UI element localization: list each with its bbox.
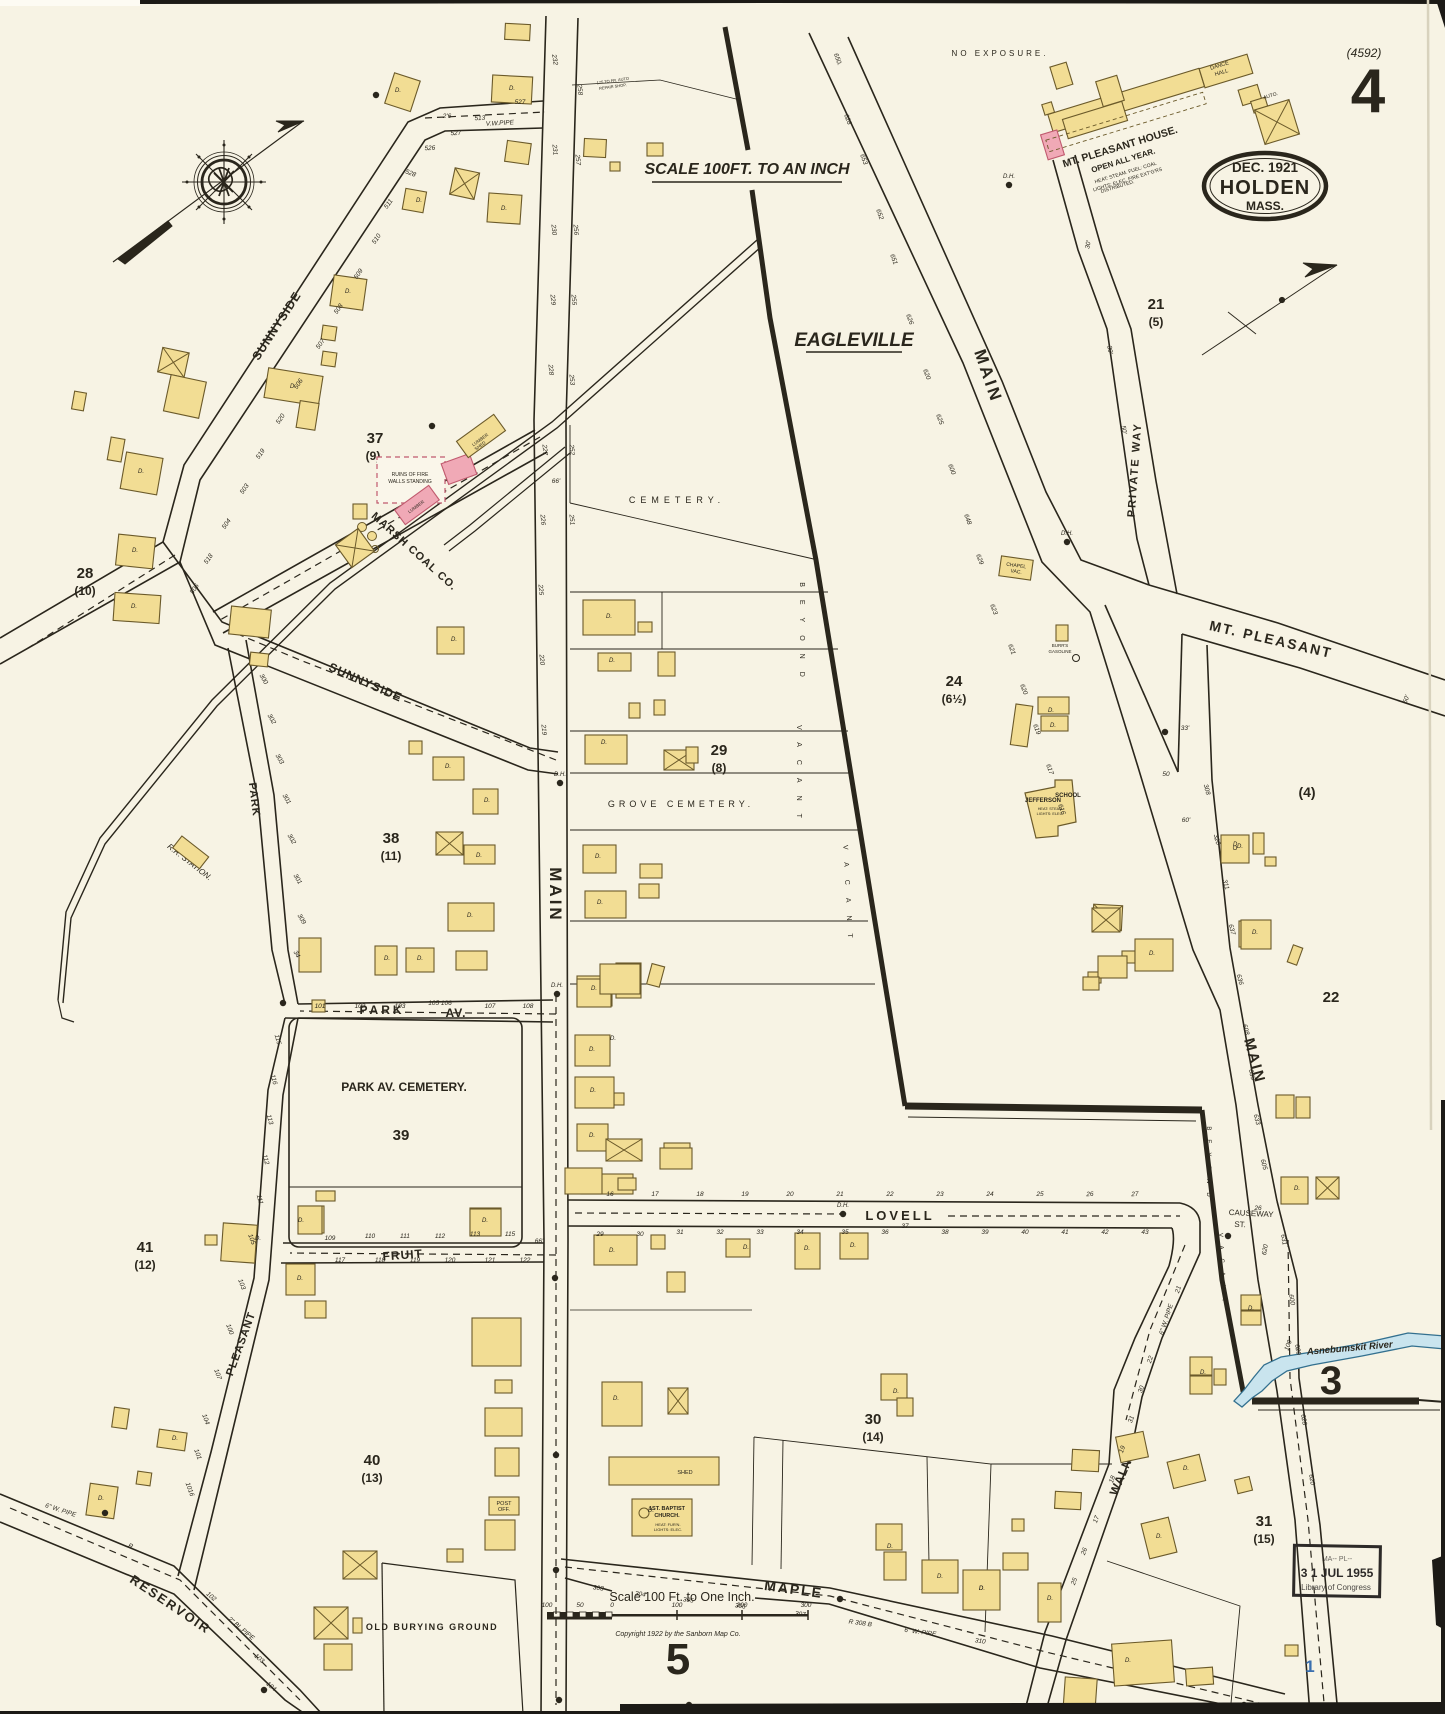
svg-text:2'6: 2'6 xyxy=(442,113,452,120)
svg-text:D.: D. xyxy=(132,548,138,554)
svg-text:(5): (5) xyxy=(1149,315,1164,329)
svg-text:5: 5 xyxy=(666,1635,690,1684)
svg-text:20: 20 xyxy=(785,1191,794,1198)
svg-text:HOLDEN: HOLDEN xyxy=(1220,177,1310,199)
svg-text:D.: D. xyxy=(597,900,603,906)
svg-text:33: 33 xyxy=(756,1229,764,1236)
svg-text:113: 113 xyxy=(470,1231,481,1238)
svg-text:D.: D. xyxy=(1050,723,1056,729)
svg-text:21: 21 xyxy=(835,1191,844,1198)
svg-text:36: 36 xyxy=(881,1229,889,1236)
svg-text:SHED: SHED xyxy=(677,1470,692,1476)
svg-text:OFF.: OFF. xyxy=(498,1507,510,1513)
svg-text:D.: D. xyxy=(589,1047,595,1053)
svg-text:D.: D. xyxy=(501,206,507,212)
svg-text:526: 526 xyxy=(424,145,436,153)
svg-text:(6½): (6½) xyxy=(942,692,967,706)
svg-text:D.: D. xyxy=(1200,1370,1206,1376)
svg-text:CHURCH.: CHURCH. xyxy=(654,1513,680,1519)
svg-text:300: 300 xyxy=(801,1602,812,1609)
svg-text:D.: D. xyxy=(595,854,601,860)
svg-text:527: 527 xyxy=(450,130,462,138)
svg-text:18: 18 xyxy=(696,1191,704,1198)
svg-text:255: 255 xyxy=(569,293,577,306)
svg-text:D.: D. xyxy=(1156,1534,1162,1540)
svg-text:D.: D. xyxy=(613,1396,619,1402)
svg-text:D.: D. xyxy=(1294,1186,1300,1192)
svg-text:D.: D. xyxy=(601,740,607,746)
svg-text:D.: D. xyxy=(131,604,137,610)
svg-text:1ST. BAPTIST: 1ST. BAPTIST xyxy=(649,1506,686,1512)
svg-text:40: 40 xyxy=(364,1452,381,1469)
svg-text:22: 22 xyxy=(885,1191,894,1198)
svg-text:105 106: 105 106 xyxy=(428,1000,452,1007)
svg-text:103: 103 xyxy=(395,1003,406,1010)
svg-text:120: 120 xyxy=(445,1257,456,1264)
svg-text:MAIN: MAIN xyxy=(546,867,565,922)
svg-text:BEYOND: BEYOND xyxy=(1205,1126,1211,1205)
svg-text:100: 100 xyxy=(542,1602,553,1609)
svg-text:251: 251 xyxy=(567,513,575,526)
svg-text:39: 39 xyxy=(981,1229,989,1236)
svg-text:D.: D. xyxy=(451,637,457,643)
svg-text:RUINS OF FIRE: RUINS OF FIRE xyxy=(392,472,429,478)
svg-text:DEC. 1921: DEC. 1921 xyxy=(1232,160,1299,175)
svg-text:220: 220 xyxy=(537,653,545,666)
svg-text:108: 108 xyxy=(523,1003,534,1010)
svg-text:D.: D. xyxy=(609,1248,615,1254)
svg-text:OLD BURYING GROUND: OLD BURYING GROUND xyxy=(366,1622,498,1632)
svg-text:D.: D. xyxy=(297,1276,303,1282)
svg-text:D.: D. xyxy=(887,1544,893,1550)
svg-text:101: 101 xyxy=(315,1003,326,1010)
svg-text:D.: D. xyxy=(1047,1596,1053,1602)
svg-text:228: 228 xyxy=(546,363,554,376)
svg-text:258: 258 xyxy=(575,83,583,96)
svg-text:112: 112 xyxy=(435,1233,446,1240)
svg-text:111: 111 xyxy=(400,1233,410,1240)
svg-text:117: 117 xyxy=(335,1257,346,1264)
svg-text:226: 226 xyxy=(538,513,546,526)
svg-text:50: 50 xyxy=(1162,771,1170,778)
svg-text:CEMETERY.: CEMETERY. xyxy=(629,495,725,505)
svg-text:513: 513 xyxy=(474,115,486,123)
svg-text:16: 16 xyxy=(606,1191,614,1198)
svg-text:40: 40 xyxy=(1021,1229,1029,1236)
svg-text:3: 3 xyxy=(1320,1359,1342,1403)
svg-text:D.: D. xyxy=(417,956,423,962)
svg-text:30: 30 xyxy=(865,1411,882,1428)
svg-text:107: 107 xyxy=(485,1003,496,1010)
svg-text:37: 37 xyxy=(367,430,384,447)
svg-text:D.: D. xyxy=(467,913,473,919)
svg-text:D.: D. xyxy=(609,658,615,664)
svg-text:60': 60' xyxy=(1182,817,1191,824)
svg-text:D.: D. xyxy=(172,1436,178,1442)
svg-text:D.: D. xyxy=(648,1508,654,1514)
svg-text:(13): (13) xyxy=(361,1471,382,1485)
svg-text:D.: D. xyxy=(590,1088,596,1094)
svg-text:110: 110 xyxy=(365,1233,376,1240)
svg-text:0: 0 xyxy=(610,1602,614,1609)
svg-text:227: 227 xyxy=(540,443,548,456)
svg-text:(12): (12) xyxy=(134,1258,155,1272)
svg-text:26: 26 xyxy=(1085,1191,1094,1198)
svg-text:D.: D. xyxy=(850,1243,856,1249)
svg-text:22: 22 xyxy=(1323,989,1340,1006)
svg-text:D.: D. xyxy=(1183,1466,1189,1472)
svg-text:D.: D. xyxy=(384,956,390,962)
svg-text:31: 31 xyxy=(1256,1513,1273,1530)
svg-text:35: 35 xyxy=(841,1229,849,1236)
svg-text:31: 31 xyxy=(676,1229,684,1236)
svg-text:GASOLINE: GASOLINE xyxy=(1048,649,1071,654)
svg-text:41: 41 xyxy=(137,1239,154,1256)
svg-text:D.: D. xyxy=(476,853,482,859)
svg-text:121: 121 xyxy=(485,1257,496,1264)
svg-text:24: 24 xyxy=(946,673,963,690)
svg-text:D.: D. xyxy=(1149,951,1155,957)
svg-text:19: 19 xyxy=(741,1191,749,1198)
svg-text:230: 230 xyxy=(549,223,557,236)
svg-text:17: 17 xyxy=(651,1191,659,1198)
svg-text:(14): (14) xyxy=(862,1430,883,1444)
svg-text:200: 200 xyxy=(736,1602,748,1609)
svg-text:D.: D. xyxy=(98,1496,104,1502)
svg-text:(11): (11) xyxy=(381,849,402,863)
svg-text:D.: D. xyxy=(1252,930,1258,936)
svg-text:D.H.: D.H. xyxy=(1003,174,1015,180)
svg-text:SCHOOL: SCHOOL xyxy=(1055,793,1081,799)
svg-text:38: 38 xyxy=(383,830,400,847)
svg-text:MA-- PL--: MA-- PL-- xyxy=(1322,1556,1353,1563)
svg-text:26: 26 xyxy=(1253,1205,1262,1212)
svg-text:118: 118 xyxy=(375,1257,386,1264)
svg-text:109: 109 xyxy=(325,1235,336,1242)
svg-text:231: 231 xyxy=(550,143,558,156)
svg-text:D.H.: D.H. xyxy=(837,1203,849,1209)
svg-text:119: 119 xyxy=(410,1257,421,1264)
svg-text:BURR'S: BURR'S xyxy=(1052,643,1069,648)
svg-text:102: 102 xyxy=(355,1003,366,1010)
svg-text:LOVELL: LOVELL xyxy=(865,1208,934,1223)
svg-text:25: 25 xyxy=(1035,1191,1044,1198)
svg-text:D.H.: D.H. xyxy=(551,983,563,989)
svg-text:229: 229 xyxy=(548,293,556,306)
svg-text:D.H.: D.H. xyxy=(1061,531,1073,537)
svg-text:D.: D. xyxy=(345,289,351,295)
svg-text:D.: D. xyxy=(484,798,490,804)
svg-text:28: 28 xyxy=(77,565,94,582)
svg-text:D.: D. xyxy=(893,1389,899,1395)
svg-text:32: 32 xyxy=(716,1229,724,1236)
svg-text:21: 21 xyxy=(1148,296,1165,313)
svg-text:50: 50 xyxy=(576,1602,584,1609)
svg-text:ST.: ST. xyxy=(1234,1220,1246,1230)
svg-text:29: 29 xyxy=(595,1231,604,1238)
svg-text:1: 1 xyxy=(1305,1657,1314,1676)
svg-text:256: 256 xyxy=(571,223,579,236)
svg-text:D.: D. xyxy=(1048,708,1054,714)
svg-text:23: 23 xyxy=(935,1191,944,1198)
svg-text:GROVE CEMETERY.: GROVE CEMETERY. xyxy=(608,799,754,809)
svg-text:(10): (10) xyxy=(74,584,95,598)
svg-text:33': 33' xyxy=(1181,725,1190,732)
svg-text:D.: D. xyxy=(509,86,515,92)
svg-text:VACANT: VACANT xyxy=(795,725,802,831)
svg-text:527: 527 xyxy=(515,99,526,106)
svg-text:D.H.: D.H. xyxy=(554,772,566,778)
svg-text:219: 219 xyxy=(539,723,547,736)
svg-text:D.: D. xyxy=(1248,1306,1254,1312)
svg-text:D.: D. xyxy=(445,764,451,770)
svg-text:MASS.: MASS. xyxy=(1246,199,1284,213)
svg-text:66': 66' xyxy=(535,1238,544,1245)
svg-text:PARK AV. CEMETERY.: PARK AV. CEMETERY. xyxy=(341,1080,467,1094)
svg-text:3 1 JUL 1955: 3 1 JUL 1955 xyxy=(1301,1566,1374,1580)
svg-text:4: 4 xyxy=(1351,57,1386,126)
svg-text:29: 29 xyxy=(711,742,728,759)
svg-text:SCALE 100FT. TO AN INCH: SCALE 100FT. TO AN INCH xyxy=(644,161,850,178)
svg-text:Library of Congress: Library of Congress xyxy=(1301,1583,1371,1592)
svg-text:D.: D. xyxy=(395,88,401,94)
svg-text:D.: D. xyxy=(298,1218,304,1224)
svg-text:115: 115 xyxy=(505,1231,516,1238)
svg-text:66': 66' xyxy=(552,478,561,485)
svg-text:100: 100 xyxy=(672,1602,683,1609)
svg-text:LIGHTS: ELEC.: LIGHTS: ELEC. xyxy=(654,1527,682,1532)
svg-text:D.: D. xyxy=(606,614,612,620)
svg-text:(8): (8) xyxy=(712,761,727,775)
svg-text:257: 257 xyxy=(573,153,581,166)
svg-text:D.: D. xyxy=(937,1574,943,1580)
svg-text:D.: D. xyxy=(979,1586,985,1592)
svg-text:34: 34 xyxy=(796,1229,804,1236)
svg-text:EAGLEVILLE: EAGLEVILLE xyxy=(794,330,915,351)
svg-text:D.: D. xyxy=(804,1246,810,1252)
svg-text:D.: D. xyxy=(589,1133,595,1139)
svg-text:253: 253 xyxy=(567,373,575,386)
svg-text:252: 252 xyxy=(567,443,575,456)
svg-text:D.: D. xyxy=(138,469,144,475)
svg-text:D.: D. xyxy=(482,1218,488,1224)
svg-text:24: 24 xyxy=(985,1191,994,1198)
svg-text:38: 38 xyxy=(941,1229,949,1236)
svg-text:BEYOND: BEYOND xyxy=(798,582,805,690)
svg-text:D.: D. xyxy=(416,198,422,204)
svg-text:D.: D. xyxy=(1125,1658,1131,1664)
svg-text:41: 41 xyxy=(1061,1229,1069,1236)
svg-text:122: 122 xyxy=(520,1257,531,1264)
svg-text:225: 225 xyxy=(536,583,544,596)
svg-text:D.: D. xyxy=(255,1236,261,1242)
svg-text:42: 42 xyxy=(1101,1229,1109,1236)
svg-text:(15): (15) xyxy=(1253,1532,1274,1546)
svg-text:30: 30 xyxy=(636,1231,644,1238)
svg-text:D.: D. xyxy=(290,384,296,390)
svg-text:43: 43 xyxy=(1141,1229,1149,1236)
svg-text:27: 27 xyxy=(1130,1191,1139,1198)
svg-text:NO EXPOSURE.: NO EXPOSURE. xyxy=(952,49,1049,58)
svg-text:D.: D. xyxy=(591,986,597,992)
svg-text:D.: D. xyxy=(743,1245,749,1251)
svg-text:Copyright 1922 by the Sanborn: Copyright 1922 by the Sanborn Map Co. xyxy=(615,1631,740,1638)
svg-text:37: 37 xyxy=(901,1223,909,1230)
svg-text:39: 39 xyxy=(393,1127,410,1144)
svg-text:AV.: AV. xyxy=(445,1006,466,1020)
svg-text:(4): (4) xyxy=(1298,784,1315,800)
svg-text:D.: D. xyxy=(1233,842,1239,848)
svg-text:D.: D. xyxy=(610,1036,616,1042)
svg-text:WALLS STANDING: WALLS STANDING xyxy=(388,479,432,485)
